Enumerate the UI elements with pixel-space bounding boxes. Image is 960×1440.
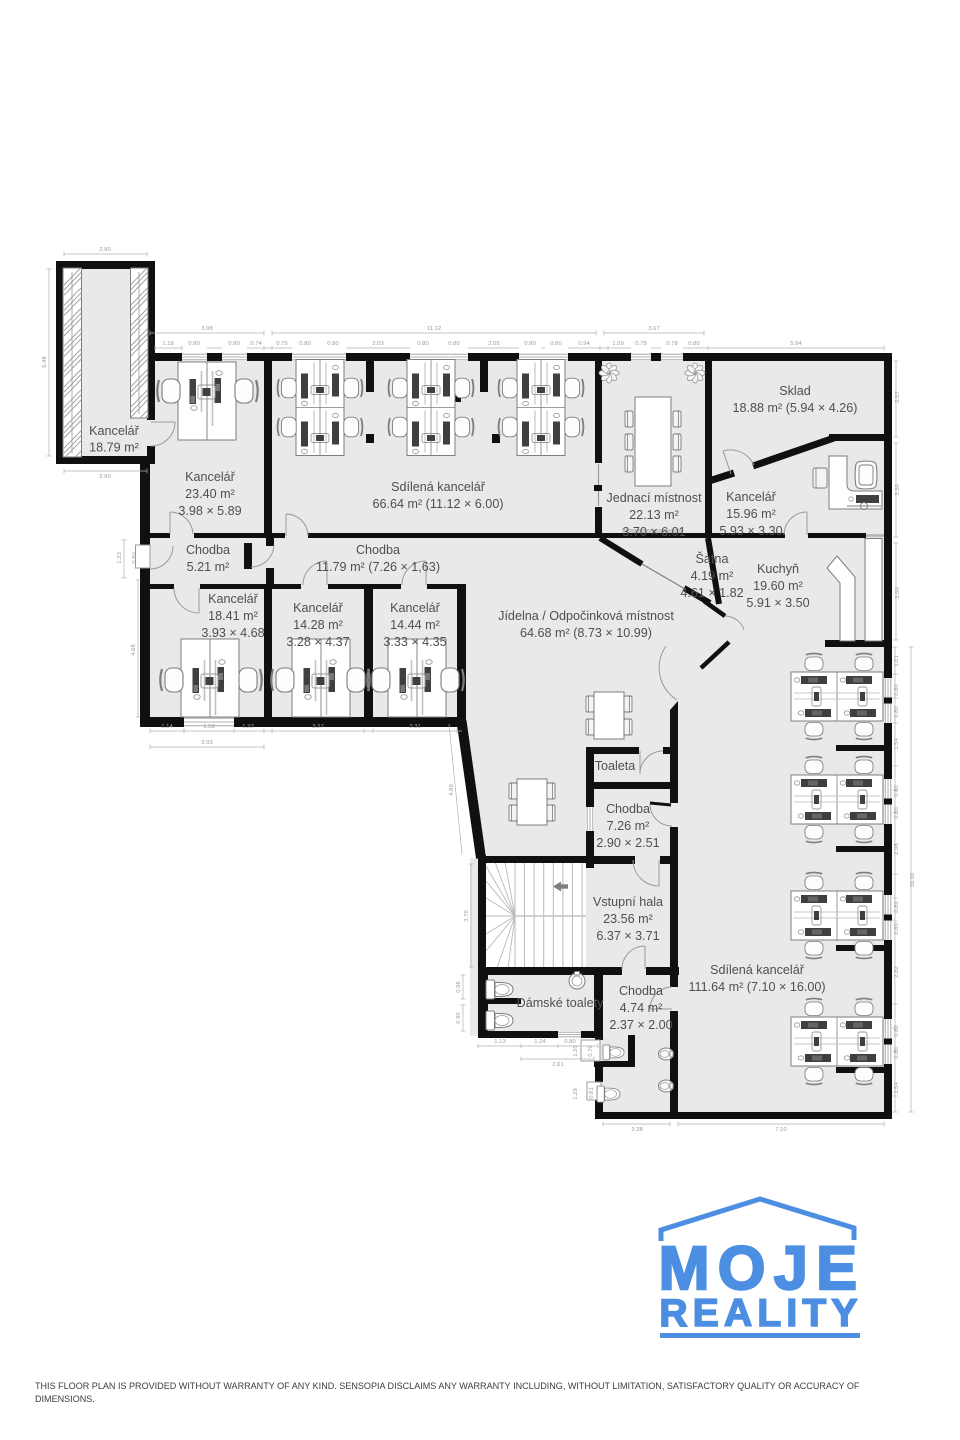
svg-text:DIMENSIONS.: DIMENSIONS. [35, 1394, 95, 1404]
svg-text:1.14: 1.14 [161, 724, 173, 730]
svg-text:Kancelář: Kancelář [293, 601, 344, 615]
svg-text:7.10: 7.10 [775, 1127, 787, 1133]
svg-text:3.93: 3.93 [201, 740, 213, 746]
svg-text:REALITY: REALITY [659, 1292, 862, 1335]
svg-text:0.80: 0.80 [894, 1025, 900, 1037]
svg-text:23.56 m²: 23.56 m² [603, 912, 653, 926]
svg-text:Kuchyň: Kuchyň [757, 562, 799, 576]
svg-text:Kancelář: Kancelář [89, 424, 140, 438]
svg-text:3.33 × 4.35: 3.33 × 4.35 [383, 635, 446, 649]
svg-text:14.28 m²: 14.28 m² [293, 618, 343, 632]
svg-text:4.61 × 1.82: 4.61 × 1.82 [680, 586, 743, 600]
svg-text:6.37 × 3.71: 6.37 × 3.71 [596, 929, 659, 943]
svg-text:0.70: 0.70 [588, 1045, 594, 1057]
svg-text:0.80: 0.80 [894, 684, 900, 696]
svg-text:0.81: 0.81 [589, 1087, 595, 1098]
svg-text:Kancelář: Kancelář [726, 490, 777, 504]
svg-text:1.09: 1.09 [612, 341, 623, 347]
svg-text:Sklad: Sklad [779, 384, 811, 398]
svg-text:Jednací místnost: Jednací místnost [606, 491, 702, 505]
svg-text:0.80: 0.80 [894, 901, 900, 913]
svg-text:0.80: 0.80 [894, 1047, 900, 1059]
svg-text:2.37 × 2.00: 2.37 × 2.00 [609, 1018, 672, 1032]
svg-text:1.01: 1.01 [894, 655, 900, 666]
svg-text:2.61: 2.61 [552, 1062, 563, 1068]
svg-text:11.12: 11.12 [427, 326, 441, 332]
svg-text:0.80: 0.80 [550, 341, 562, 347]
svg-text:4.19 m²: 4.19 m² [691, 569, 734, 583]
svg-text:3.93 × 4.68: 3.93 × 4.68 [201, 626, 264, 640]
svg-text:3.67: 3.67 [648, 326, 659, 332]
svg-text:3.30: 3.30 [895, 484, 901, 496]
svg-text:2.08: 2.08 [894, 843, 900, 855]
svg-text:1.18: 1.18 [162, 341, 174, 347]
svg-text:1.54: 1.54 [894, 1082, 900, 1094]
svg-text:1.58: 1.58 [203, 724, 215, 730]
svg-text:0.94: 0.94 [578, 341, 590, 347]
svg-text:6.48: 6.48 [42, 356, 48, 368]
svg-text:0.75: 0.75 [276, 341, 288, 347]
svg-text:Sdílená kancelář: Sdílená kancelář [391, 480, 486, 494]
svg-text:0.96: 0.96 [456, 981, 462, 993]
svg-text:0.80: 0.80 [564, 1039, 576, 1045]
svg-text:7.26 m²: 7.26 m² [607, 819, 650, 833]
svg-text:5.91 × 3.50: 5.91 × 3.50 [746, 596, 809, 610]
svg-text:1.33: 1.33 [117, 552, 123, 564]
svg-text:Sdílená kancelář: Sdílená kancelář [710, 963, 805, 977]
svg-text:Dámské toalety: Dámské toalety [517, 996, 604, 1010]
svg-text:Kancelář: Kancelář [208, 592, 259, 606]
svg-text:4.68: 4.68 [131, 644, 137, 656]
svg-text:0.80: 0.80 [299, 341, 311, 347]
svg-text:2.90 × 2.51: 2.90 × 2.51 [596, 836, 659, 850]
svg-text:18.41 m²: 18.41 m² [208, 609, 258, 623]
svg-text:3.98: 3.98 [201, 326, 213, 332]
svg-text:5.93 × 3.30: 5.93 × 3.30 [719, 524, 782, 538]
svg-text:64.68 m² (8.73 × 10.99): 64.68 m² (8.73 × 10.99) [520, 626, 652, 640]
svg-text:5.94: 5.94 [790, 341, 802, 347]
svg-text:18.88 m² (5.94 × 4.26): 18.88 m² (5.94 × 4.26) [733, 401, 858, 415]
svg-text:0.90: 0.90 [456, 1012, 462, 1024]
svg-text:1.24: 1.24 [534, 1039, 546, 1045]
svg-text:Kancelář: Kancelář [185, 470, 236, 484]
svg-text:THIS FLOOR PLAN IS PROVIDED WI: THIS FLOOR PLAN IS PROVIDED WITHOUT WARR… [35, 1381, 860, 1391]
svg-text:2.82: 2.82 [894, 966, 900, 977]
svg-text:0.80: 0.80 [524, 341, 536, 347]
svg-text:3.28 × 4.37: 3.28 × 4.37 [286, 635, 349, 649]
svg-text:0.80: 0.80 [688, 341, 700, 347]
svg-text:1.29: 1.29 [573, 1088, 579, 1099]
svg-text:Kancelář: Kancelář [390, 601, 441, 615]
svg-text:1.22: 1.22 [242, 724, 253, 730]
svg-text:5.21 m²: 5.21 m² [187, 560, 230, 574]
svg-text:Vstupní hala: Vstupní hala [593, 895, 663, 909]
svg-text:22.13 m²: 22.13 m² [629, 508, 679, 522]
svg-text:0.78: 0.78 [635, 341, 647, 347]
svg-text:0.80: 0.80 [188, 341, 200, 347]
svg-text:2.03: 2.03 [372, 341, 384, 347]
svg-text:3.27: 3.27 [312, 724, 323, 730]
svg-text:0.80: 0.80 [894, 807, 900, 819]
svg-text:3.31: 3.31 [409, 724, 420, 730]
svg-text:1.20: 1.20 [573, 1045, 579, 1057]
svg-text:0.78: 0.78 [666, 341, 678, 347]
svg-text:2.57: 2.57 [895, 391, 901, 402]
svg-text:2.90: 2.90 [99, 247, 111, 253]
svg-text:Chodba: Chodba [356, 543, 400, 557]
svg-text:2.38: 2.38 [631, 1127, 643, 1133]
svg-text:23.40 m²: 23.40 m² [185, 487, 235, 501]
svg-text:Chodba: Chodba [619, 984, 663, 998]
svg-text:111.64 m² (7.10 × 16.00): 111.64 m² (7.10 × 16.00) [688, 980, 825, 994]
svg-text:Chodba: Chodba [606, 802, 650, 816]
svg-text:1.13: 1.13 [494, 1039, 506, 1045]
svg-text:0.80: 0.80 [417, 341, 429, 347]
svg-text:15.96 m²: 15.96 m² [726, 507, 776, 521]
svg-text:4.74 m²: 4.74 m² [620, 1001, 663, 1015]
svg-text:0.80: 0.80 [894, 923, 900, 935]
svg-text:18.79 m²: 18.79 m² [89, 441, 139, 455]
svg-text:2.90: 2.90 [99, 474, 111, 480]
svg-text:0.80: 0.80 [894, 785, 900, 797]
svg-text:0.74: 0.74 [250, 341, 262, 347]
svg-text:4.89: 4.89 [449, 784, 455, 795]
svg-text:0.80: 0.80 [132, 552, 138, 564]
svg-text:Jídelna / Odpočinková místnost: Jídelna / Odpočinková místnost [498, 609, 674, 623]
svg-text:3.70 × 6.01: 3.70 × 6.01 [622, 525, 685, 539]
svg-text:66.64 m² (11.12 × 6.00): 66.64 m² (11.12 × 6.00) [372, 497, 503, 511]
svg-text:2.05: 2.05 [488, 341, 500, 347]
svg-text:16.00: 16.00 [910, 872, 916, 887]
svg-text:3.98 × 5.89: 3.98 × 5.89 [178, 504, 241, 518]
svg-text:0.80: 0.80 [448, 341, 460, 347]
svg-text:Šatna: Šatna [696, 551, 729, 566]
svg-text:0.80: 0.80 [228, 341, 240, 347]
svg-text:3.50: 3.50 [895, 587, 901, 599]
svg-text:11.79 m² (7.26 × 1,63): 11.79 m² (7.26 × 1,63) [316, 560, 440, 574]
svg-text:14.44 m²: 14.44 m² [390, 618, 440, 632]
svg-text:19.60 m²: 19.60 m² [753, 579, 803, 593]
svg-text:1.54: 1.54 [894, 738, 900, 750]
svg-text:Toaleta: Toaleta [595, 759, 636, 773]
svg-text:0.80: 0.80 [894, 706, 900, 718]
svg-text:3.70: 3.70 [464, 910, 470, 922]
svg-text:Chodba: Chodba [186, 543, 230, 557]
svg-text:0.80: 0.80 [327, 341, 339, 347]
